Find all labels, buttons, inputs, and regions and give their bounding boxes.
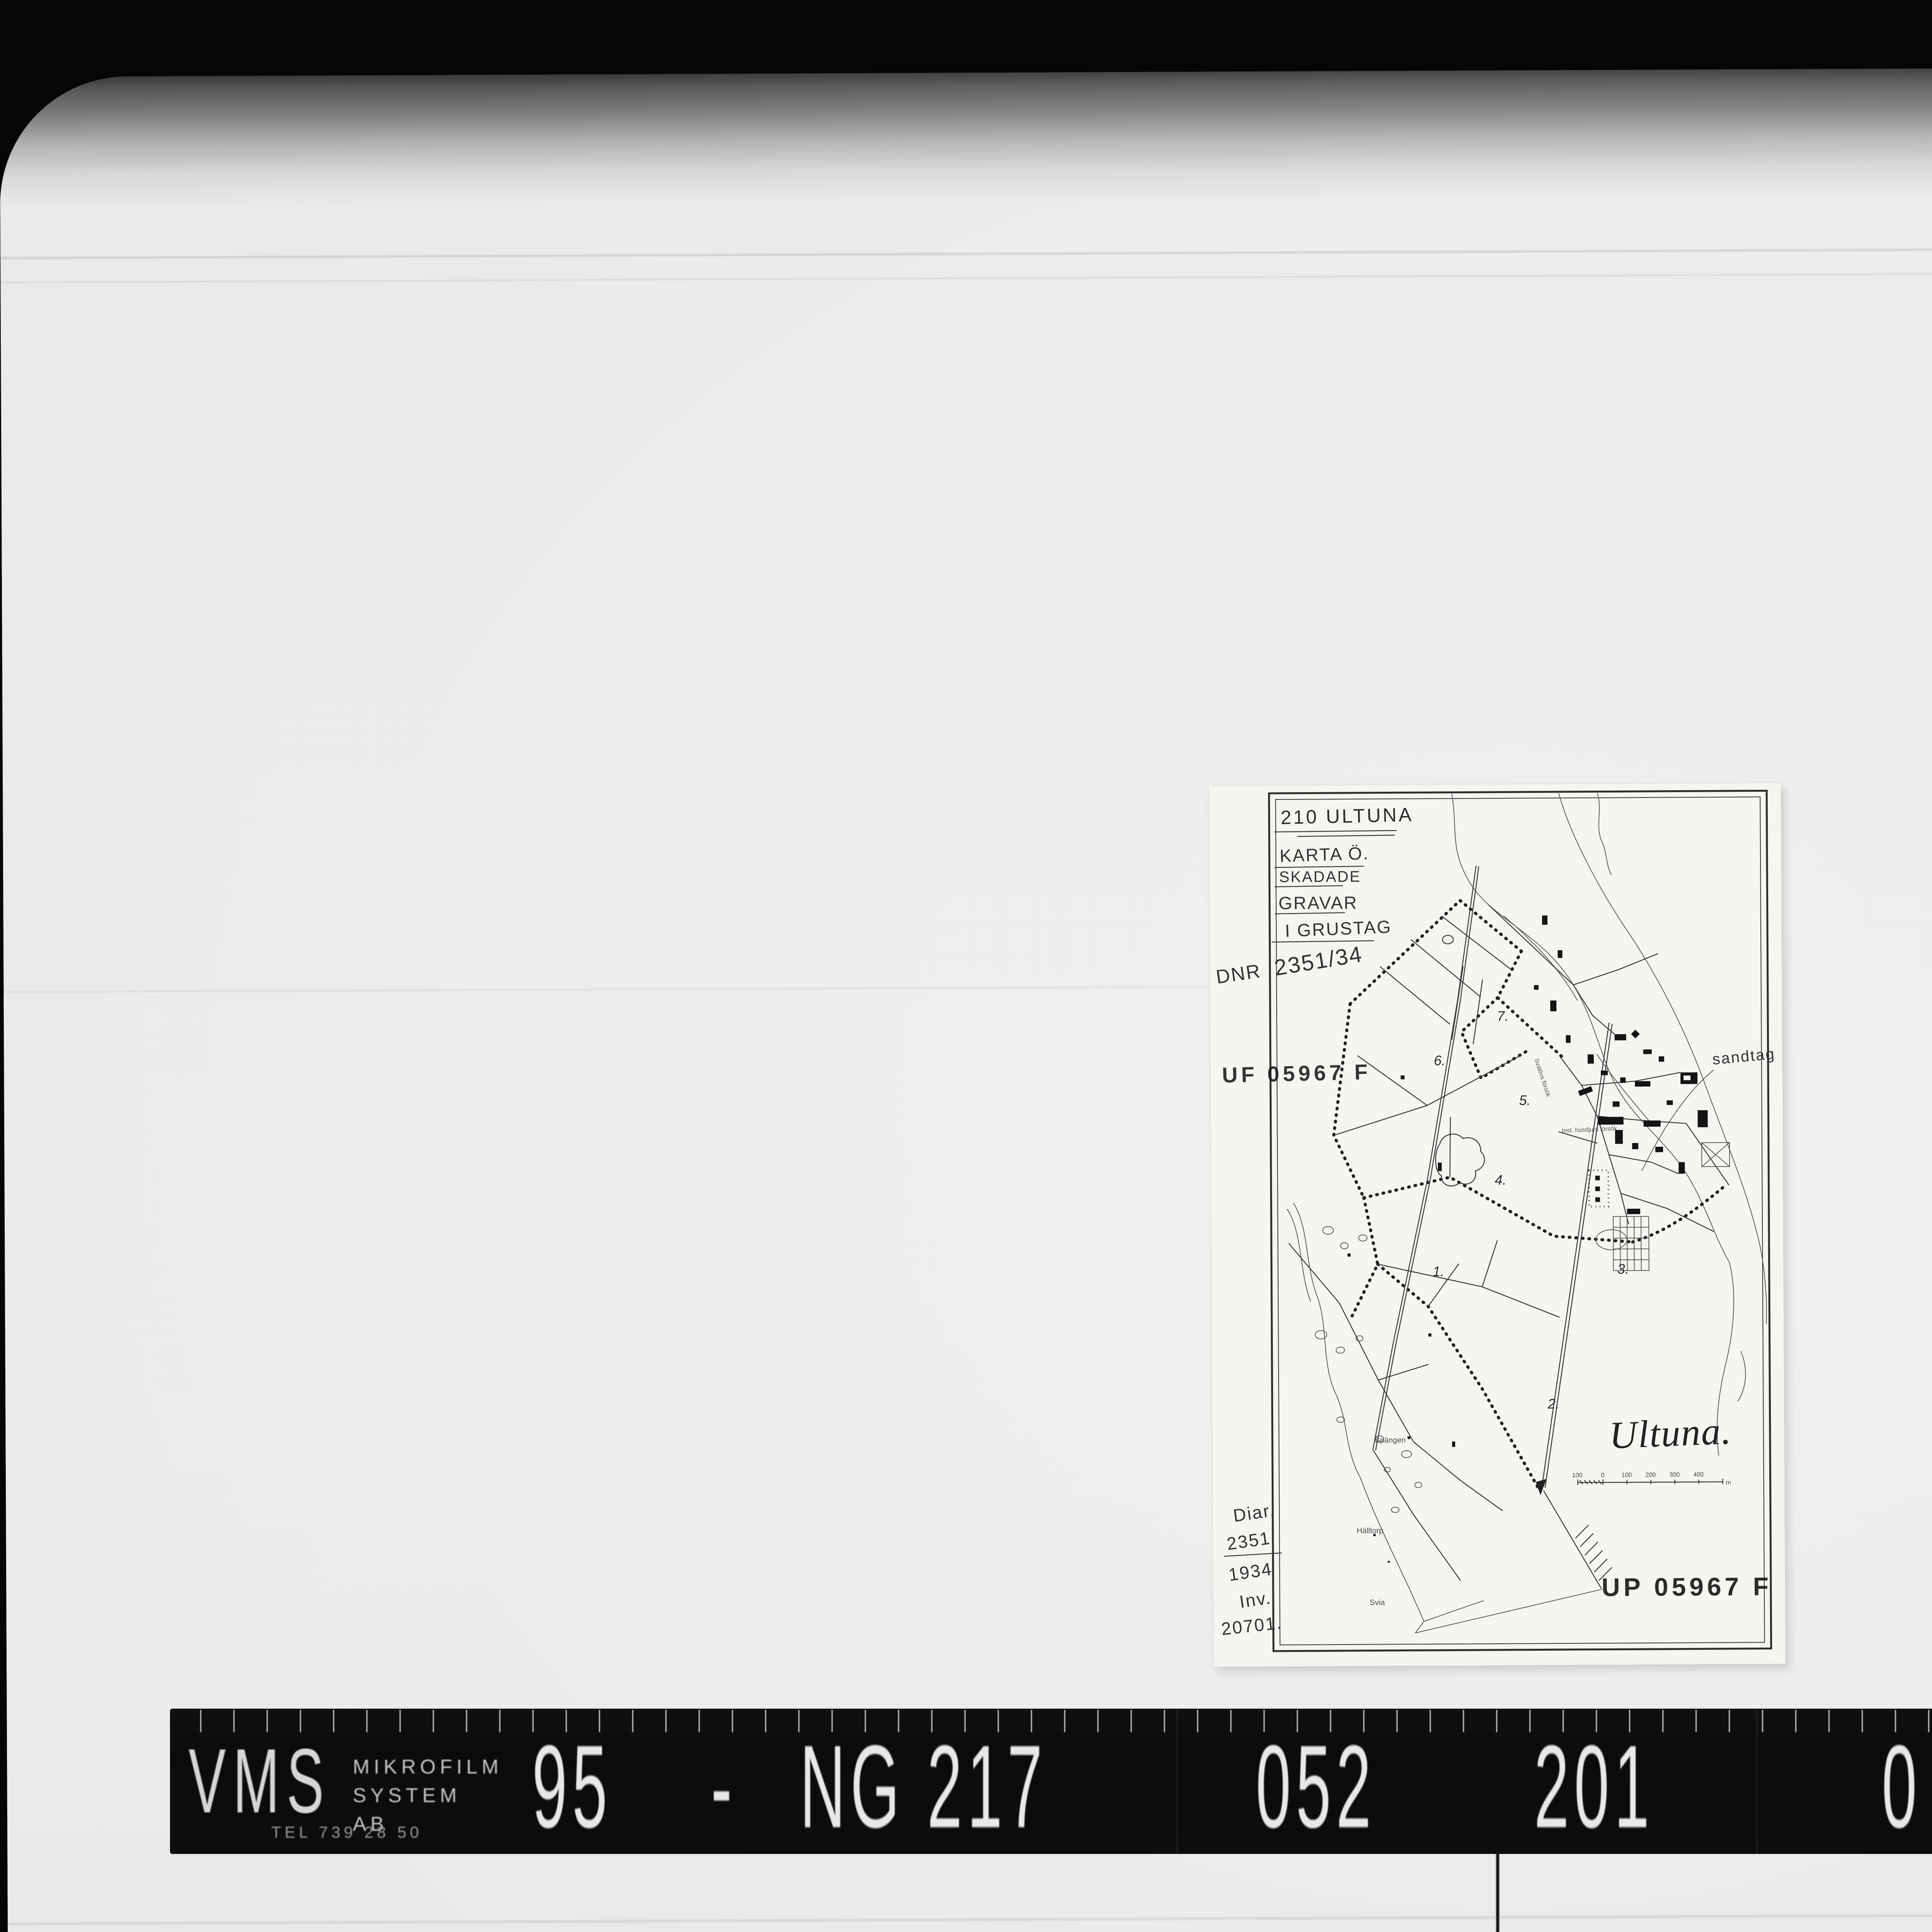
park-square [1702, 1143, 1730, 1167]
scale-unit: m [1726, 1480, 1731, 1486]
hatch-marks [1575, 1525, 1612, 1580]
sandtag-label: sandtag [1712, 1045, 1776, 1068]
brand-phone: TEL 739 28 50 [271, 1823, 422, 1842]
film-streak [0, 269, 1932, 283]
map-title: Ultuna. [1608, 1409, 1732, 1457]
railway-line [1533, 1022, 1615, 1588]
brand-logo: VMS MIKROFILM SYSTEM AB [189, 1746, 371, 1817]
river-shorelines [1452, 792, 1767, 1457]
scale-tick: 300 [1669, 1472, 1680, 1478]
pond [1442, 935, 1453, 944]
scale-tick: 100 [1572, 1472, 1582, 1479]
field-3: 0 [1882, 1700, 1922, 1862]
dnr-label: DNR [1214, 960, 1262, 988]
diar-line: 2351 [1225, 1528, 1272, 1554]
title-line: I GRUSTAG [1284, 917, 1392, 941]
scale-tick: 100 [1621, 1472, 1632, 1478]
parcel-number: 2. [1547, 1396, 1559, 1412]
dnr-value: 2351/34 [1272, 941, 1364, 980]
roads-and-field-lines [1287, 864, 1731, 1582]
field-1: 052 [1256, 1700, 1376, 1862]
dnr-annotation: DNR 2351/34 [1214, 941, 1365, 988]
frame-pointer-line [1496, 1851, 1499, 1932]
brand-name: VMS [189, 1736, 331, 1827]
parcel-number: 7. [1497, 1008, 1509, 1024]
archive-stamp-bottom: UP 05967 F [1602, 1572, 1772, 1601]
film-streak [8, 1909, 1932, 1925]
film-streak [3, 986, 1268, 993]
place-label: Svia [1370, 1599, 1385, 1607]
map-document: 210 ULTUNA KARTA Ö. SKADADE GRAVAR I GRU… [1209, 783, 1786, 1667]
title-line: SKADADE [1279, 868, 1361, 886]
film-code: NG 217 [800, 1700, 1048, 1862]
title-line: GRAVAR [1278, 893, 1358, 913]
place-label: Spängen [1375, 1436, 1406, 1444]
scale-bar: 100 0 100 200 300 400 m [1572, 1471, 1731, 1487]
ruler-ticks [200, 1710, 1932, 1732]
parcel-numbers: 1. 2. 3. 4. 5. 6. 7. [1431, 1007, 1629, 1412]
diar-line: Diar. [1232, 1500, 1277, 1526]
micro-label: Inst. husdjurs försök [1561, 1125, 1617, 1134]
parcel-number: 1. [1433, 1264, 1444, 1279]
microfilm-label-strip: VMS MIKROFILM SYSTEM AB TEL 739 28 50 95… [170, 1709, 1932, 1854]
scale-tick: 0 [1601, 1472, 1604, 1479]
map-drawing: 210 ULTUNA KARTA Ö. SKADADE GRAVAR I GRU… [1209, 783, 1786, 1667]
archive-stamp-left: UF 05967 F [1222, 1060, 1371, 1087]
scale-tick: 200 [1645, 1472, 1656, 1478]
parcel-number: 4. [1495, 1172, 1506, 1188]
micro-label: Svalövs försök [1533, 1058, 1552, 1098]
scale-tick: 400 [1693, 1471, 1704, 1478]
parcel-number: 3. [1617, 1261, 1629, 1277]
film-streak [0, 244, 1932, 259]
parcel-number: 6. [1434, 1053, 1446, 1068]
diar-line: Inv. [1238, 1587, 1272, 1612]
brand-line1: MIKROFILM [353, 1753, 503, 1781]
title-line: KARTA Ö. [1279, 843, 1369, 866]
microfilm-scan-background: 210 ULTUNA KARTA Ö. SKADADE GRAVAR I GRU… [0, 0, 1932, 1932]
title-line: 210 ULTUNA [1281, 804, 1414, 828]
place-label: Hälltorp [1357, 1527, 1383, 1535]
separator-dash: - [711, 1700, 737, 1862]
estate-boundary-dotted [1333, 899, 1728, 1491]
buildings-cluster [1346, 915, 1710, 1563]
reel-number: 95 [532, 1700, 612, 1862]
courtyard [1684, 1075, 1690, 1080]
title-block: 210 ULTUNA KARTA Ö. SKADADE GRAVAR I GRU… [1278, 804, 1414, 941]
gravel-pit-outline [1435, 1134, 1485, 1186]
field-2: 201 [1534, 1700, 1654, 1862]
parcel-number: 5. [1519, 1092, 1531, 1108]
diar-line: 1934 [1227, 1559, 1274, 1585]
